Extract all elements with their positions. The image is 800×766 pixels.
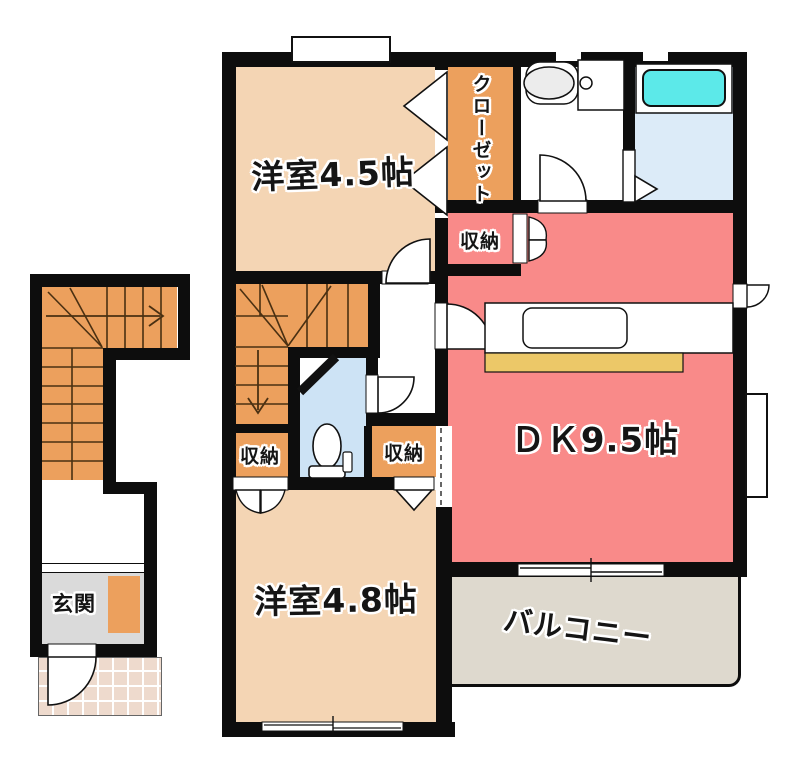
double-door-storage-left — [236, 490, 285, 513]
sliding-window-western-48 — [262, 716, 403, 733]
kitchen-counter-icon — [485, 303, 733, 372]
door-leaf — [366, 375, 378, 413]
room-label-closet: クローゼット — [468, 74, 495, 206]
door-arc-toilet — [378, 377, 414, 413]
door-leaf — [233, 477, 288, 490]
door-leaf — [394, 477, 434, 490]
room-label-storage-right: 収納 — [384, 439, 424, 466]
folding-door-bathroom — [623, 150, 657, 202]
door-leaf — [538, 200, 587, 213]
stairs-down-arrow — [248, 350, 268, 413]
door-arc-western-45 — [386, 239, 430, 283]
room-label-entrance: 玄関 — [52, 588, 96, 618]
fixtures-overlay — [0, 0, 800, 766]
room-label-storage-top: 収納 — [460, 227, 500, 254]
washbasin-icon — [524, 62, 578, 104]
double-door-storage-top — [529, 217, 546, 261]
vent-window — [643, 52, 668, 61]
window — [746, 394, 767, 497]
bathtub-icon — [636, 64, 732, 113]
room-label-dk: ＤＫ9.5帖 — [511, 413, 679, 462]
window — [292, 37, 390, 62]
door-leaf — [513, 214, 527, 263]
folding-door-storage-right — [396, 490, 432, 510]
floorplan-canvas: 洋室4.5帖 クローゼット 収納 ＤＫ9.5帖 収納 収納 洋室4.8帖 バルコ… — [0, 0, 800, 766]
washing-machine-pan-icon — [578, 60, 624, 110]
room-label-storage-left: 収納 — [240, 442, 280, 469]
room-label-western-48: 洋室4.8帖 — [254, 573, 418, 624]
toilet-icon — [309, 424, 352, 478]
stairs-up-arrow — [46, 306, 163, 326]
room-label-western-45: 洋室4.5帖 — [250, 145, 415, 199]
door-leaf — [435, 303, 448, 349]
door-arc-entrance — [48, 657, 96, 705]
door-leaf — [733, 284, 747, 308]
door-arc-washroom — [540, 155, 586, 201]
stairs-internal-lines — [235, 284, 348, 404]
door-leaf — [48, 644, 96, 657]
door-arc-kitchen-backdoor — [747, 285, 769, 307]
sliding-window-dk — [518, 558, 664, 582]
folding-door-closet — [404, 72, 447, 215]
